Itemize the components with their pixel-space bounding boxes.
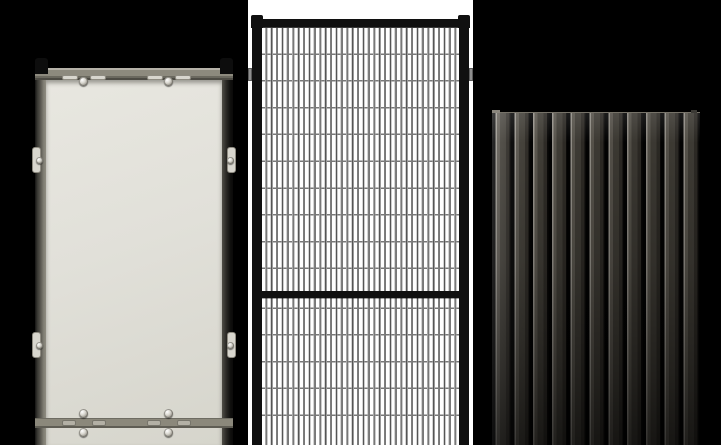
corner-cap-left: [35, 58, 48, 74]
side-clip-right: [227, 147, 236, 173]
rail-clip: [62, 408, 106, 438]
screw-icon: [164, 77, 173, 86]
frame-right: [222, 66, 233, 445]
corner-cap-right: [220, 58, 233, 74]
fixing-tab-left: [248, 68, 252, 81]
frame-left: [35, 66, 46, 445]
side-clip-left: [32, 332, 41, 358]
screw-icon: [164, 428, 173, 437]
mesh-section-lower: [262, 298, 459, 445]
screw-icon: [79, 428, 88, 437]
screw-icon: [36, 157, 43, 164]
mesh-panel-section: [248, 0, 473, 445]
mesh-cap-left: [251, 15, 263, 28]
mesh-post-right: [459, 19, 469, 445]
mesh-section-upper: [262, 28, 459, 291]
screw-icon: [227, 157, 234, 164]
screw-icon: [79, 409, 88, 418]
clip-wing-right: [177, 420, 191, 426]
top-clip: [62, 71, 106, 93]
screw-icon: [227, 342, 234, 349]
rail-clip: [147, 408, 191, 438]
clip-wing-left: [147, 75, 163, 80]
wire-mesh-panel: [252, 15, 469, 445]
infill-sheet: [46, 80, 222, 445]
product-gallery: [0, 0, 721, 445]
ribbed-sheet-panel: [492, 112, 700, 445]
clip-wing-right: [175, 75, 191, 80]
screw-icon: [79, 77, 88, 86]
mesh-post-left: [252, 19, 262, 445]
screw-icon: [36, 342, 43, 349]
clip-wing-left: [62, 75, 78, 80]
mesh-mid-rail: [252, 291, 469, 298]
clip-wing-left: [147, 420, 161, 426]
mesh-top-rail: [252, 19, 469, 28]
side-clip-left: [32, 147, 41, 173]
clip-wing-right: [92, 420, 106, 426]
screw-icon: [164, 409, 173, 418]
solid-infill-panel: [35, 58, 233, 445]
top-clip: [147, 71, 191, 93]
mesh-cap-right: [458, 15, 470, 28]
fixing-tab-right: [469, 68, 473, 81]
side-clip-right: [227, 332, 236, 358]
clip-wing-right: [90, 75, 106, 80]
clip-wing-left: [62, 420, 76, 426]
